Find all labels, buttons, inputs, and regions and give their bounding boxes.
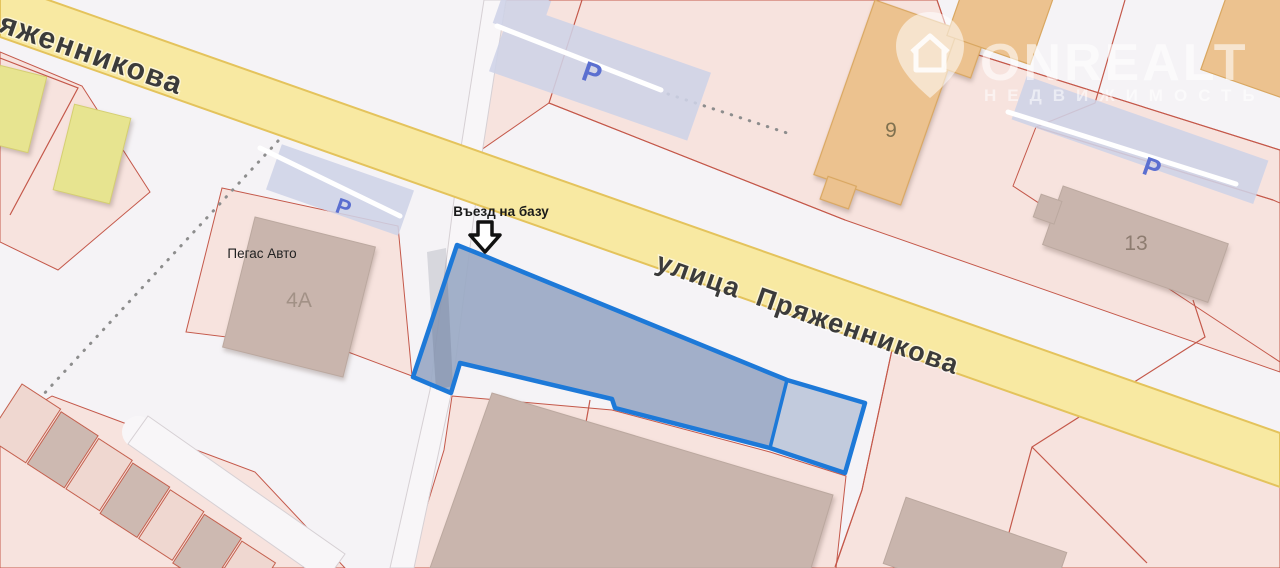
map-canvas[interactable]: P P P <box>0 0 1280 568</box>
building-4a-label: 4А <box>286 289 312 312</box>
building-9-label: 9 <box>885 119 897 142</box>
entrance-label: Въезд на базу <box>453 204 549 219</box>
entrance-arrow-icon <box>470 222 500 252</box>
watermark-brand: ONREALT <box>980 34 1248 92</box>
building-13-label: 13 <box>1124 232 1147 255</box>
watermark-tagline: НЕДВИЖИМОСТЬ <box>984 86 1266 105</box>
business-label: Пегас Авто <box>227 246 296 261</box>
map-viewport[interactable]: P P P <box>0 0 1280 568</box>
